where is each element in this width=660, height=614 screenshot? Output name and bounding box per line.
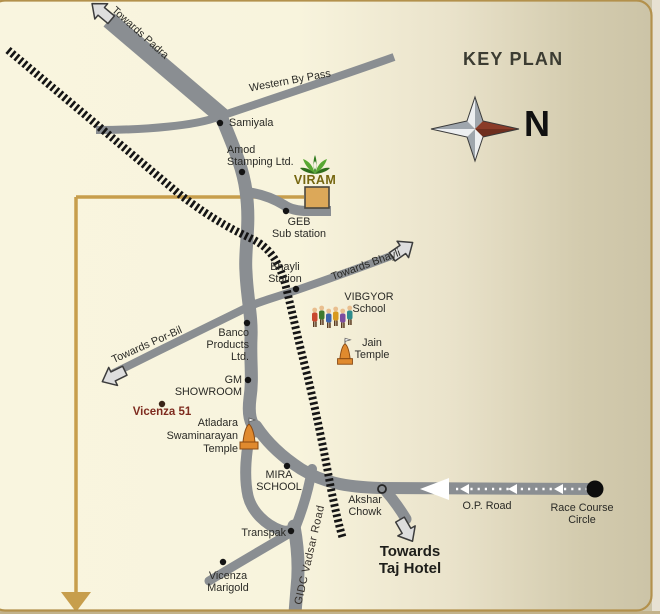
landmark-gm-showroom: GM SHOWROOM	[164, 374, 242, 398]
gm-dot	[245, 377, 251, 383]
site-label-viram: VIRAM	[294, 173, 336, 187]
road-label-op-road: O.P. Road	[462, 500, 511, 512]
landmark-akshar-chowk: Akshar Chowk	[348, 494, 382, 518]
page-right-margin	[652, 0, 660, 614]
viram-plant-logo-icon	[300, 155, 330, 174]
samiyala-dot	[217, 120, 223, 126]
north-label: N	[524, 106, 550, 142]
landmark-banco-products: Banco Products Ltd.	[199, 327, 249, 363]
race-course-circle-marker	[587, 481, 604, 498]
amod-dot	[239, 169, 245, 175]
landmark-bhayli-station: Bhayli Station	[268, 261, 302, 285]
gold-route-arrow-icon	[61, 592, 91, 612]
key-plan-map: KEY PLAN N Towards Padra Western By Pass…	[0, 0, 660, 614]
landmark-vicenza-marigold: Vicenza Marigold	[207, 570, 248, 594]
op-road	[382, 488, 599, 489]
op-road-white-arrow-icon	[420, 478, 449, 500]
transpak-dot	[288, 528, 294, 534]
landmark-transpak: Transpak	[236, 527, 286, 539]
landmark-mira-school: MIRA SCHOOL	[256, 469, 302, 493]
landmark-atladara-temple: Atladara Swaminarayan Temple	[158, 417, 238, 456]
landmark-jain-temple: Jain Temple	[355, 337, 390, 361]
banco-dot	[244, 320, 250, 326]
landmark-samiyala: Samiyala	[229, 117, 273, 129]
landmark-race-course-circle: Race Course Circle	[550, 502, 613, 526]
jain-temple-icon	[338, 338, 353, 364]
bhayli-station-dot	[293, 286, 299, 292]
taj-arrow-icon	[391, 515, 421, 547]
page-title: KEY PLAN	[463, 49, 563, 69]
road-label-towards-taj-hotel: Towards Taj Hotel	[379, 543, 441, 578]
compass-rose-icon	[431, 97, 519, 161]
landmark-vibgyor-school: VIBGYOR School	[344, 291, 393, 315]
geb-dot	[283, 208, 289, 214]
marigold-dot	[220, 559, 226, 565]
viram-building	[305, 187, 329, 208]
padra-road	[109, 20, 223, 117]
landmark-amod-stamping: Amod Stamping Ltd.	[227, 144, 294, 168]
landmark-geb-substation: GEB Sub station	[272, 216, 326, 240]
